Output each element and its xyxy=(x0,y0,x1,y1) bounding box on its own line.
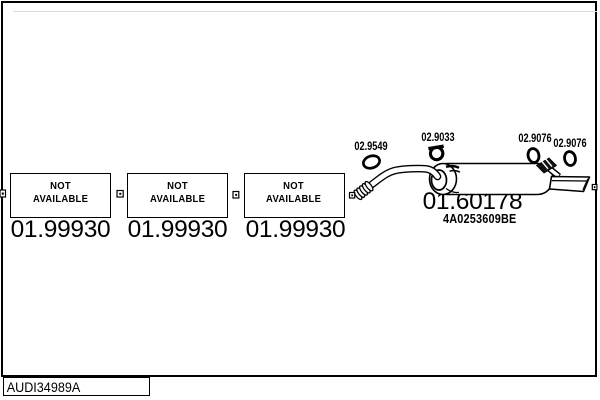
mount-square-icon xyxy=(117,191,123,198)
mount-square-icon xyxy=(350,193,355,199)
muffler-body[interactable] xyxy=(430,164,554,195)
bolt-clamp-icon[interactable] xyxy=(428,146,445,161)
gasket-ring-icon-2[interactable] xyxy=(527,148,540,164)
catalog-diagram-page: NOT AVAILABLE NOT AVAILABLE NOT AVAILABL… xyxy=(0,0,600,400)
gasket-ring-icon-1[interactable] xyxy=(362,154,381,171)
exhaust-diagram xyxy=(0,0,600,400)
catalog-code: AUDI34989A xyxy=(4,379,80,395)
mount-square-icon xyxy=(233,192,239,199)
gasket-ring-icon-3[interactable] xyxy=(563,151,576,167)
mount-square-icon xyxy=(592,185,597,190)
mount-square-icon xyxy=(0,190,6,197)
catalog-code-box: AUDI34989A xyxy=(3,377,150,396)
inlet-pipe xyxy=(371,169,438,186)
